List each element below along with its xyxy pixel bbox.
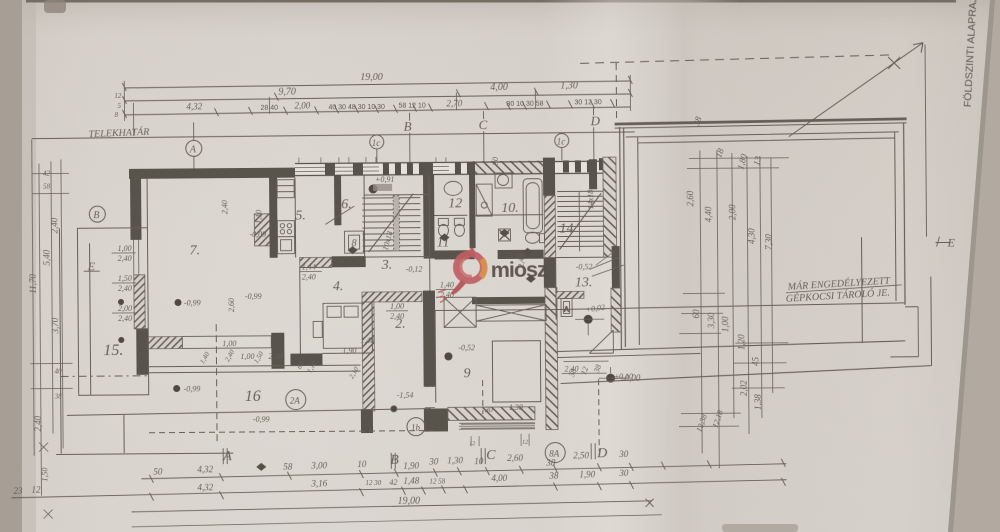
svg-text:±0,10: ±0,10 (615, 372, 633, 381)
svg-text:2,40: 2,40 (390, 312, 404, 321)
svg-text:4,32: 4,32 (197, 464, 213, 474)
svg-text:11,70: 11,70 (28, 274, 38, 294)
svg-text:D: D (590, 113, 601, 128)
svg-text:2,60: 2,60 (507, 453, 523, 463)
svg-text:1,44: 1,44 (302, 262, 316, 271)
svg-text:30 12 30: 30 12 30 (574, 99, 601, 106)
svg-text:12: 12 (31, 485, 41, 495)
svg-text:4,40: 4,40 (703, 206, 713, 222)
svg-text:1b: 1b (411, 423, 421, 433)
svg-text:C: C (479, 117, 488, 132)
svg-text:2,40: 2,40 (440, 290, 454, 299)
svg-text:1,00: 1,00 (390, 302, 404, 311)
svg-text:2,50: 2,50 (573, 450, 589, 460)
svg-text:12 58: 12 58 (429, 477, 445, 485)
svg-text:2,02: 2,02 (739, 380, 749, 396)
svg-text:58 12 10: 58 12 10 (398, 103, 425, 110)
svg-text:1,00: 1,00 (222, 339, 236, 348)
svg-text:19,00: 19,00 (398, 496, 421, 507)
svg-text:2,70: 2,70 (446, 98, 462, 108)
svg-text:5,40: 5,40 (42, 249, 52, 265)
svg-text:1c: 1c (557, 136, 566, 146)
svg-text:2,40: 2,40 (220, 200, 229, 214)
svg-text:D: D (596, 446, 607, 461)
svg-text:+0,91: +0,91 (375, 175, 394, 184)
svg-text:2,40: 2,40 (49, 217, 59, 233)
svg-text:1,90: 1,90 (342, 346, 356, 355)
svg-text:1,30: 1,30 (509, 403, 523, 412)
svg-text:1,50: 1,50 (40, 468, 49, 482)
svg-text:1,90: 1,90 (579, 469, 595, 479)
svg-text:4,00: 4,00 (491, 473, 507, 483)
svg-text:10: 10 (474, 456, 484, 466)
svg-text:30: 30 (618, 449, 629, 459)
svg-text:4,00: 4,00 (490, 82, 508, 93)
svg-text:-1,54: -1,54 (397, 391, 414, 400)
svg-text:2,40: 2,40 (302, 272, 316, 281)
svg-text:4.: 4. (333, 279, 344, 294)
svg-text:2,00: 2,00 (727, 204, 737, 220)
svg-text:10.: 10. (501, 201, 519, 216)
svg-text:12 30: 12 30 (365, 479, 381, 487)
svg-text:15.: 15. (103, 342, 123, 359)
svg-text:9,70: 9,70 (278, 87, 296, 98)
svg-text:2,00: 2,00 (118, 304, 132, 313)
svg-text:4,32: 4,32 (197, 482, 213, 492)
svg-text:3.: 3. (381, 258, 393, 273)
svg-text:2A: 2A (290, 396, 301, 406)
svg-text:2,60: 2,60 (685, 190, 695, 206)
svg-text:-0,99: -0,99 (245, 292, 262, 301)
svg-text:38: 38 (548, 471, 559, 481)
svg-text:1,30: 1,30 (447, 455, 463, 465)
svg-text:2,40: 2,40 (118, 314, 132, 323)
svg-text:3,00: 3,00 (310, 460, 327, 470)
svg-text:2,40: 2,40 (118, 284, 132, 293)
svg-text:A: A (189, 144, 197, 155)
svg-text:14: 14 (559, 221, 573, 236)
svg-text:B: B (404, 119, 412, 134)
svg-text:13.: 13. (575, 275, 593, 290)
svg-text:40: 40 (55, 367, 63, 375)
svg-text:2,40: 2,40 (33, 415, 43, 431)
svg-text:30: 30 (428, 456, 439, 466)
svg-text:-0,12: -0,12 (406, 265, 423, 274)
svg-text:16: 16 (245, 388, 261, 405)
svg-text:3,70: 3,70 (50, 317, 60, 334)
svg-text:-0,99: -0,99 (184, 384, 201, 393)
svg-text:60: 60 (691, 309, 701, 319)
svg-text:5.: 5. (295, 209, 306, 224)
svg-text:1,20: 1,20 (736, 334, 746, 350)
svg-text:30: 30 (618, 468, 629, 478)
svg-text:-0,99: -0,99 (184, 298, 201, 307)
svg-text:1,00: 1,00 (118, 244, 132, 253)
svg-text:2,40: 2,40 (268, 352, 282, 361)
svg-text:miosz: miosz (491, 258, 547, 282)
svg-text:9: 9 (464, 366, 471, 381)
svg-text:2,00: 2,00 (294, 100, 310, 110)
svg-text:42: 42 (389, 478, 397, 487)
svg-text:1,48: 1,48 (403, 476, 419, 486)
svg-text:19,00: 19,00 (360, 72, 383, 83)
svg-text:C: C (486, 448, 496, 463)
svg-text:42: 42 (43, 170, 51, 178)
svg-text:3,30: 3,30 (706, 312, 716, 329)
svg-text:1c: 1c (372, 138, 381, 148)
svg-text:8: 8 (115, 111, 119, 119)
svg-text:58: 58 (43, 183, 51, 191)
svg-text:-0,09: -0,09 (249, 230, 266, 239)
svg-text:3,16: 3,16 (310, 478, 327, 488)
svg-text:12: 12 (448, 196, 462, 211)
svg-text:7,30: 7,30 (763, 234, 773, 250)
svg-text:1,40: 1,40 (360, 336, 374, 345)
svg-text:38: 38 (54, 392, 63, 400)
svg-text:A: A (564, 306, 569, 313)
svg-text:12: 12 (114, 92, 122, 100)
svg-text:45: 45 (750, 356, 760, 366)
svg-text:10: 10 (357, 459, 367, 469)
svg-text:4,30: 4,30 (746, 228, 756, 244)
svg-text:12: 12 (522, 440, 528, 446)
svg-text:38: 38 (545, 458, 556, 468)
svg-text:23: 23 (13, 486, 23, 496)
svg-text:4,32: 4,32 (186, 101, 202, 111)
svg-text:2,40: 2,40 (118, 254, 132, 263)
svg-text:1,50: 1,50 (118, 274, 132, 283)
svg-text:1,40: 1,40 (440, 280, 454, 289)
svg-text:1,10: 1,10 (254, 210, 263, 224)
svg-text:1,30: 1,30 (560, 80, 578, 91)
svg-text:-0,52: -0,52 (576, 262, 593, 271)
svg-text:14x18: 14x18 (586, 190, 595, 210)
svg-text:6.: 6. (341, 197, 352, 212)
svg-text:B: B (93, 210, 99, 221)
svg-text:1,90: 1,90 (403, 461, 419, 471)
svg-text:2,40: 2,40 (565, 364, 579, 373)
svg-text:50: 50 (153, 467, 163, 477)
svg-text:-0,52: -0,52 (458, 343, 475, 352)
svg-text:5: 5 (117, 102, 121, 110)
svg-text:30: 30 (484, 405, 493, 414)
svg-text:-0,99: -0,99 (253, 415, 270, 424)
svg-text:12: 12 (469, 441, 475, 447)
svg-text:1,00: 1,00 (720, 316, 730, 332)
svg-text:2,60: 2,60 (227, 298, 236, 312)
svg-text:1,38: 1,38 (753, 394, 763, 410)
svg-text:90: 90 (491, 157, 500, 165)
svg-text:7.: 7. (190, 243, 201, 258)
svg-text:58: 58 (283, 462, 293, 472)
